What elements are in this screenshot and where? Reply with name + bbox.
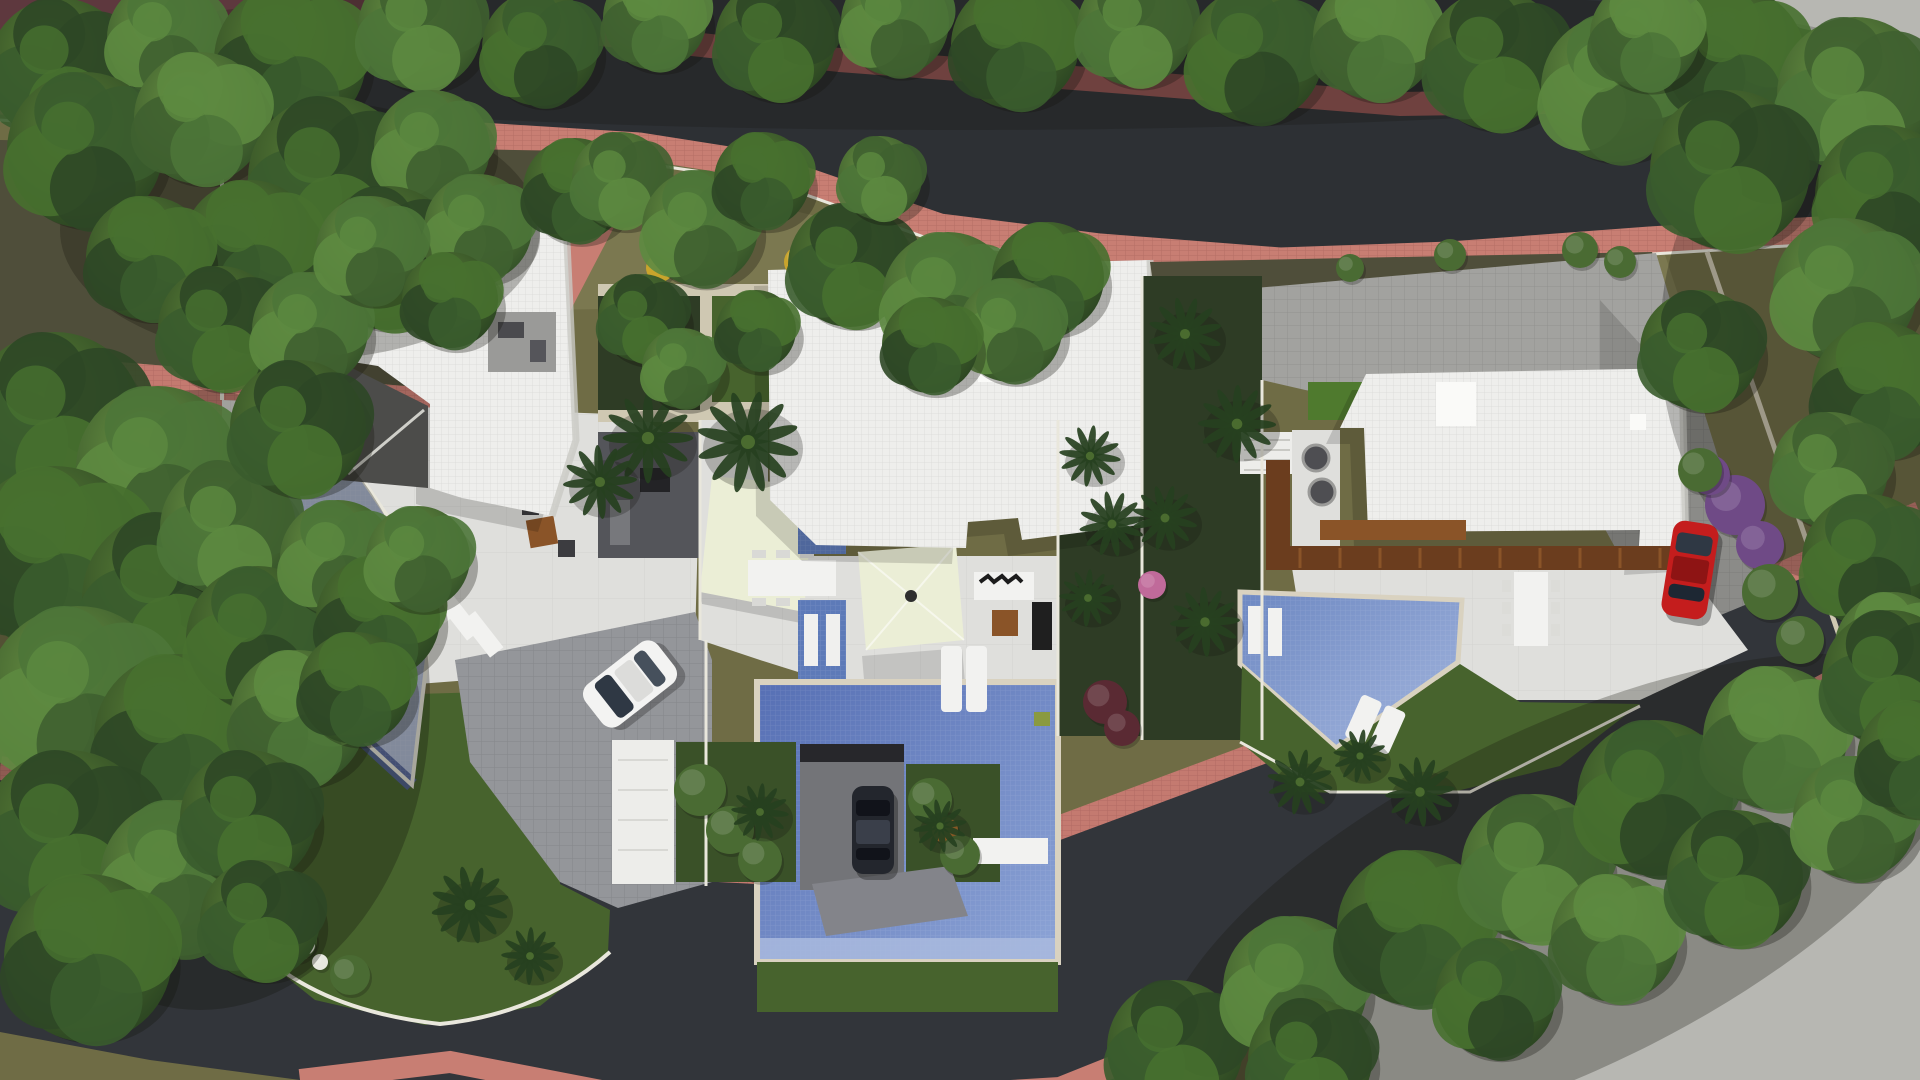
villa2-south-lawn [757,962,1058,1012]
villa1-garage-roof [612,740,674,884]
chair [1502,624,1511,636]
chair [558,540,575,557]
site-plan-render [0,0,1920,1080]
sun-lounger [941,646,962,712]
tree-canopy [1184,0,1332,127]
chair [752,550,766,558]
dining-table [1514,572,1548,646]
villa3-roof-chimney [1436,382,1476,426]
white-planter-box [973,838,1048,864]
water-wall-window [804,614,818,666]
tree-canopy [197,860,328,984]
kitchen-module [1032,602,1052,650]
side-table [992,610,1018,636]
tree-canopy [1637,290,1768,414]
tree-canopy [363,506,478,615]
car-windshield [856,800,890,816]
dark-car [852,786,898,880]
pergola-beam-horizontal [1266,546,1680,570]
car-rear-window [856,848,890,860]
water-wall-window [826,614,840,666]
villa2-pool-shallow-edge [757,938,1058,962]
villa3-roof [1326,368,1686,575]
chair [1502,580,1511,592]
roof-patio-chair [530,340,546,362]
chair [776,550,790,558]
chair [1551,602,1560,614]
sun-lounger [966,646,987,712]
villa3-dining-set [1502,572,1560,646]
tree-canopy [1432,938,1563,1062]
car-roof [856,820,890,844]
chair [1551,580,1560,592]
cushion-box [1034,712,1050,726]
roof-vent [1630,414,1646,430]
dining-table [748,560,836,596]
chair [752,598,766,606]
garage-door-shadow [800,744,904,762]
chair [1551,624,1560,636]
pergola-beam-inner [1320,520,1466,540]
round-table [1303,445,1329,471]
pool-mat [1248,606,1262,654]
round-table [1309,479,1335,505]
pool-mat [1268,608,1282,656]
parasol-pole [905,590,917,602]
tree-canopy [296,632,419,749]
chair [776,598,790,606]
chair [1502,602,1511,614]
